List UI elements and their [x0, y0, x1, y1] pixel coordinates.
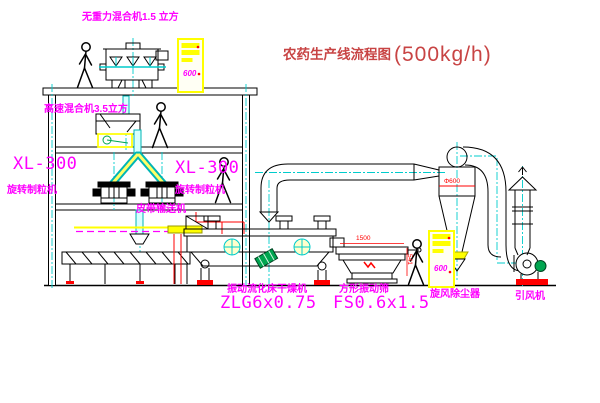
label-dryer-model: ZLG6x0.75 [220, 295, 317, 312]
indicator-dot [197, 46, 200, 49]
sight-target [294, 239, 310, 255]
diagram-canvas: 农药生产线流程图 (500kg/h) 无重力混合机1.5 立方 高速混合机3.5… [0, 0, 600, 403]
label-top-mixer: 无重力混合机1.5 立方 [82, 13, 179, 23]
fan-motor [535, 261, 546, 272]
cabinet-right-display: 600 [434, 265, 447, 273]
sight-target [224, 239, 240, 255]
belt-conveyor [62, 210, 192, 284]
label-belt-conveyor: 皮带输送机 [136, 205, 186, 215]
indicator-dot [198, 73, 201, 76]
cabinet-top-display: 600 [183, 70, 196, 78]
person-figure [153, 103, 168, 148]
screen-motor-mark [364, 262, 375, 268]
person-figure [78, 43, 93, 88]
induced-draft-fan [516, 253, 548, 285]
label-granulator-left-name: 旋转制粒机 [7, 186, 57, 196]
label-granulator-left-model: XL-300 [13, 156, 77, 173]
dim-cyclone-diameter: Φ600 [444, 179, 460, 186]
label-cyclone: 旋风除尘器 [430, 290, 480, 300]
control-cabinet-right [429, 231, 454, 287]
title-capacity: (500kg/h) [394, 44, 492, 65]
label-screen-model: FS0.6x1.5 [333, 295, 430, 312]
label-fan: 引风机 [515, 292, 545, 302]
dim-screen-length: 1500 [356, 236, 370, 243]
label-mid-mixer: 高速混合机3.5立方 [44, 105, 128, 115]
indicator-dot [449, 271, 452, 274]
title-text: 农药生产线流程图 [283, 48, 391, 62]
y-feed-pipe [112, 155, 164, 184]
top-mixer [99, 43, 168, 88]
dim-screen-height: 541 [406, 254, 413, 265]
page-title: 农药生产线流程图 (500kg/h) [283, 44, 492, 65]
indicator-dot [448, 237, 451, 240]
label-granulator-right-name: 旋转制粒机 [175, 186, 225, 196]
label-granulator-right-model: XL-300 [175, 160, 239, 177]
control-cabinet-top [178, 39, 203, 92]
